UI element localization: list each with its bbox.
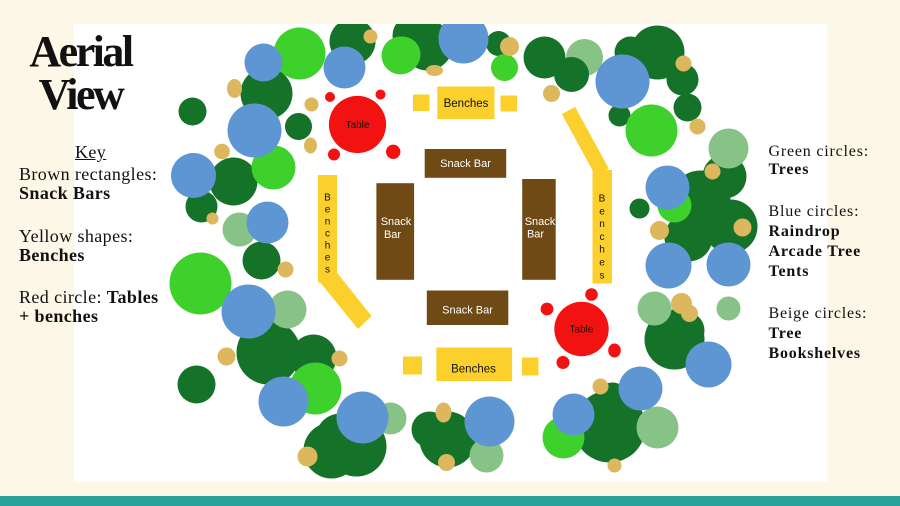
svg-text:Table: Table bbox=[569, 324, 593, 335]
svg-text:s: s bbox=[325, 264, 330, 275]
svg-text:c: c bbox=[599, 231, 604, 242]
svg-text:e: e bbox=[324, 252, 330, 263]
svg-text:Snack Bar: Snack Bar bbox=[440, 158, 491, 170]
svg-text:e: e bbox=[599, 206, 605, 217]
svg-text:Snack: Snack bbox=[524, 215, 555, 227]
svg-text:Table: Table bbox=[345, 120, 369, 131]
svg-text:h: h bbox=[599, 244, 605, 255]
svg-text:h: h bbox=[324, 240, 330, 251]
svg-text:c: c bbox=[325, 228, 330, 239]
svg-text:Bar: Bar bbox=[526, 228, 543, 240]
svg-text:Benches: Benches bbox=[451, 363, 496, 375]
svg-text:Benches: Benches bbox=[443, 98, 488, 110]
svg-text:s: s bbox=[599, 270, 604, 281]
svg-text:e: e bbox=[324, 204, 330, 215]
svg-text:B: B bbox=[324, 192, 331, 203]
svg-text:n: n bbox=[599, 219, 605, 230]
svg-text:Bar: Bar bbox=[383, 229, 400, 241]
svg-text:Snack Bar: Snack Bar bbox=[442, 304, 493, 316]
svg-text:Snack: Snack bbox=[380, 216, 411, 228]
svg-text:e: e bbox=[599, 257, 605, 268]
svg-text:B: B bbox=[598, 193, 605, 204]
svg-text:n: n bbox=[324, 216, 330, 227]
